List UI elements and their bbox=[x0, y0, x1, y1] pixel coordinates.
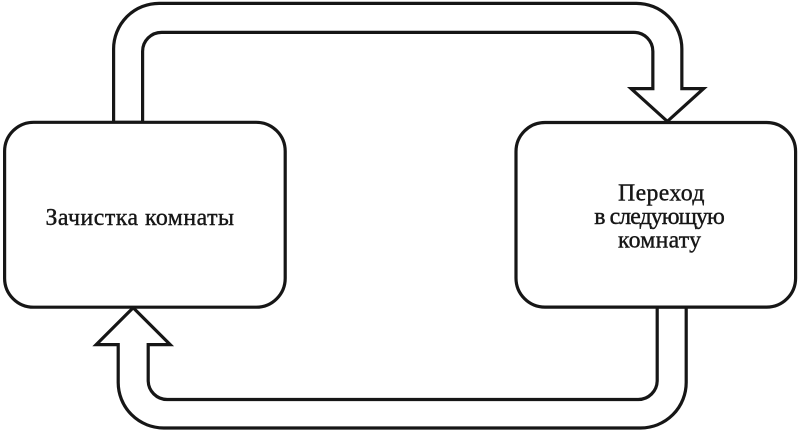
svg-text:Переход: Переход bbox=[618, 181, 705, 207]
svg-text:в следующую: в следующую bbox=[594, 204, 725, 230]
svg-text:Зачистка комнаты: Зачистка комнаты bbox=[46, 205, 235, 231]
svg-text:комнату: комнату bbox=[618, 228, 701, 254]
